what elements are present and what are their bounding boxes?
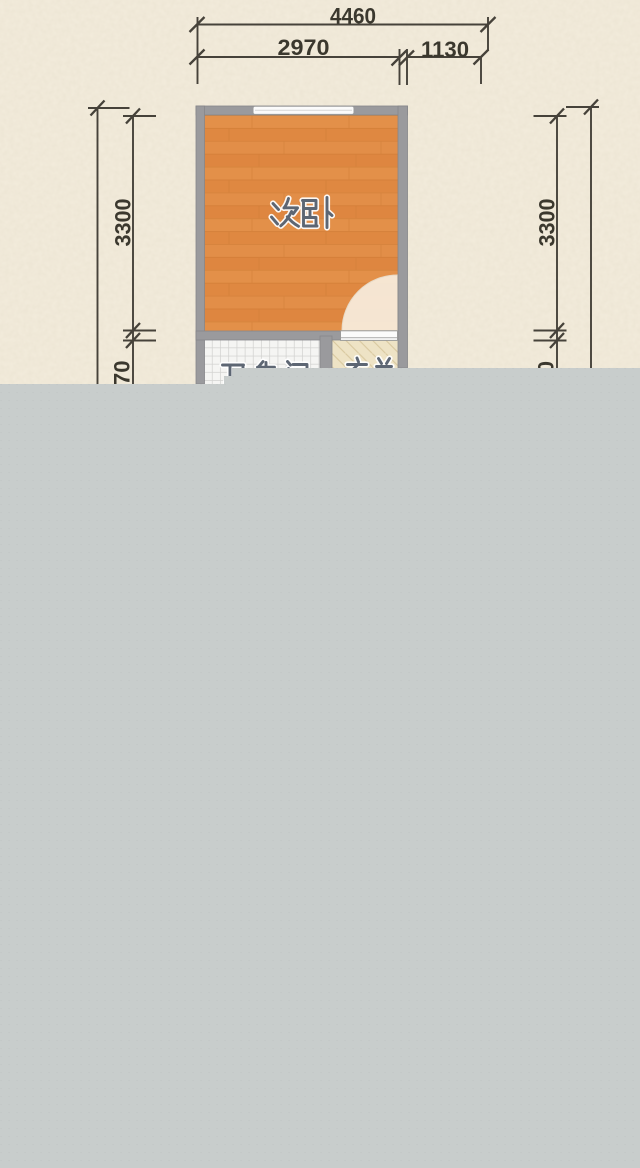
svg-text:3300: 3300: [535, 199, 560, 247]
svg-text:4460: 4460: [330, 4, 376, 29]
svg-text:2970: 2970: [278, 35, 330, 60]
svg-text:1130: 1130: [421, 37, 469, 62]
svg-text:3300: 3300: [111, 199, 136, 247]
